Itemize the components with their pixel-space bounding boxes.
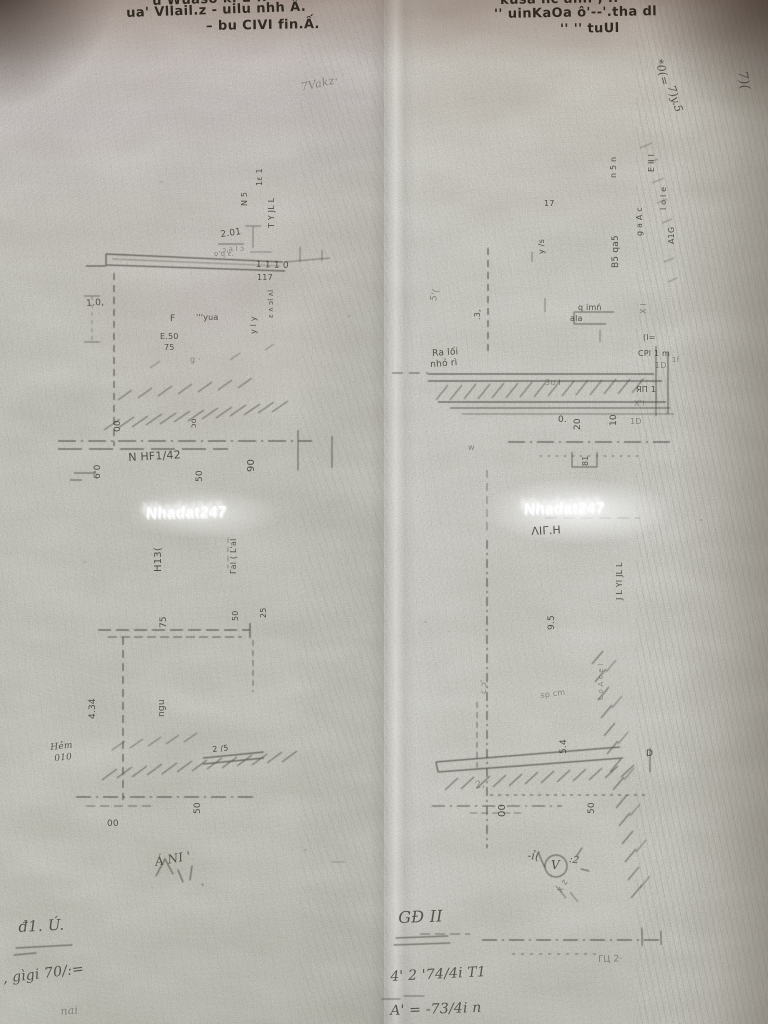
lt-col-3: N 5 (241, 192, 249, 206)
hw-tick: -ỉ( (527, 850, 540, 862)
margin-note-3: 7)( (735, 70, 751, 91)
photo-of-cadastral-document: Nhadat247 Nhadat247 Nhadat247 Nhadat247 … (0, 0, 768, 1024)
annotation-layer: u Wuaso k. 2 ..ua' Vllail.z - uilu nhh Â… (0, 0, 768, 1024)
hw-circle-v: V (551, 859, 560, 871)
rt-dim-b5: B5 qa5 (612, 235, 621, 268)
hw-gigi: , gìgi 70/:= (2, 962, 85, 986)
rt-dim-10: 10 (610, 414, 619, 426)
lt-col-4: ɛ ʌ ɔl ʌl (268, 290, 275, 318)
rb-mark-2: 2, (474, 779, 486, 791)
lt-dim-1110: 1 1 1 0 (256, 261, 289, 271)
lt-dim-10: 1.0, (86, 299, 105, 309)
rt-dim-81: 81 (582, 455, 590, 466)
lt-label-e50: E.50 (160, 333, 179, 341)
rt-dim-3: .3, (474, 309, 482, 320)
hw-gd2: GĐ II (398, 908, 443, 926)
rt-glyph-1d: 1D (655, 362, 667, 370)
lt-col-5: y l y (250, 316, 258, 334)
lt-mark-g: g · (190, 356, 201, 364)
rb-mark-sp: sp cm (540, 689, 566, 700)
rt-col-6: y /s (538, 239, 546, 254)
rt-mark-w: w (468, 444, 475, 452)
header-right-line3: '' '' tuUl (560, 22, 620, 36)
rt-col-1: E il l (648, 154, 656, 172)
rb-mark-xz: x z (556, 878, 571, 894)
hw-num-line2: A' = -73/4i n (390, 1001, 482, 1018)
rb-label-d: D (646, 750, 653, 759)
lb-dim-25: 25 (260, 607, 268, 618)
rb-dim-95: 9.5 (548, 615, 557, 630)
rb-mark-co: c ɔ' (480, 680, 488, 694)
rt-glyph-xl: X'l (634, 400, 645, 408)
lt-dim-201: 2.01 (220, 228, 242, 240)
lt-mark-117: 117 (257, 274, 273, 282)
lt-label-nhf: N HF1/42 (128, 449, 181, 463)
hw-num-line1: 4' 2 '74/4i T1 (390, 965, 486, 984)
rt-dim-17: 17 (544, 200, 555, 208)
header-right-line2: '' uinKaOa ô'--'.tha dl (494, 5, 657, 21)
hw-d1u: đ1. Ú. (18, 918, 65, 935)
rt-label-ala: ala (570, 315, 583, 323)
rt-dim-20: 20 (574, 418, 583, 430)
lb-dim-75: 75 (160, 616, 169, 628)
rb-dim-54: 5.4 (560, 739, 569, 754)
rt-glyph-cl: (l= (643, 334, 656, 342)
rt-dim-0: 0. (558, 416, 567, 425)
mid-label: H13( (154, 547, 164, 572)
rb-mark-bottom: ΓЦ 2· (598, 955, 623, 965)
lt-dim-50: 50 (196, 470, 205, 482)
rt-glyph-1f: 1ſ (672, 357, 679, 364)
lb-dim-50: 50 (232, 610, 240, 621)
lt-dim-00: 00 (114, 420, 123, 432)
rt-mark-5: 5'( (430, 288, 442, 302)
rt-glyph-cpl: CPl 1 m (638, 350, 670, 358)
lt-col-1: 1ɛ 1 (256, 168, 264, 186)
lb-hem-note-2: 010 (54, 753, 73, 764)
lb-dim-50b: 50 (194, 802, 203, 814)
rt-label-qimn: q imń (578, 304, 602, 312)
rt-col-7: X l (640, 303, 648, 314)
rt-raloi-note-2: nhỏ rì (430, 359, 458, 370)
lb-sketch-note: Á NI ' (154, 850, 192, 868)
lb-dim-00b: 00 (107, 820, 119, 829)
lt-label-f: F (170, 315, 175, 324)
margin-note-1: *0(= (653, 58, 671, 87)
lt-dim-90: 90 (247, 459, 257, 472)
faint-scribble-top: 7Vakz· (300, 74, 339, 93)
lt-dim-60: 6'0 (94, 464, 103, 479)
lt-label-75: 75 (164, 344, 175, 352)
rt-col-4: g a A c (636, 207, 644, 236)
rb-col-2: L o A c e l (598, 664, 605, 700)
rb-col-1: J L YI JL L (616, 562, 624, 600)
mid-col-glyphs: Γal ( L'al (230, 538, 238, 574)
rt-col-3: l o l e (660, 187, 668, 210)
lt-col-2: T Y JL L (268, 198, 276, 228)
rt-glyph-rp: ЯП 1 (636, 386, 656, 394)
lt-label-yua: '''yua (196, 314, 219, 322)
margin-note-2: 7)y.5 (666, 84, 685, 114)
lb-room-label: ngu (158, 699, 167, 717)
header-left-line3: – bu CIVI fin.Ấ. (206, 18, 320, 33)
rt-col-2: n 5 n (610, 157, 618, 178)
rt-glyph-1d2: 1D (630, 418, 642, 426)
lt-dim-oo: ɔo (190, 418, 198, 428)
rt-mark-3ul: 3u l (545, 379, 561, 387)
lt-col-6: o'q ɛ. (214, 251, 234, 258)
rb-dim-50: 50 (588, 802, 597, 814)
rb-room-label: ΛΙΓ.Η (531, 524, 561, 537)
hw-colon2: :2 (568, 855, 580, 867)
hw-nai: nai (60, 1004, 79, 1017)
rt-col-5: A1G (668, 227, 676, 244)
lb-mark-25: 2 /5 (212, 744, 229, 754)
rb-dim-00: 00 (498, 804, 508, 817)
lb-dim-434: 4.34 (89, 698, 98, 719)
